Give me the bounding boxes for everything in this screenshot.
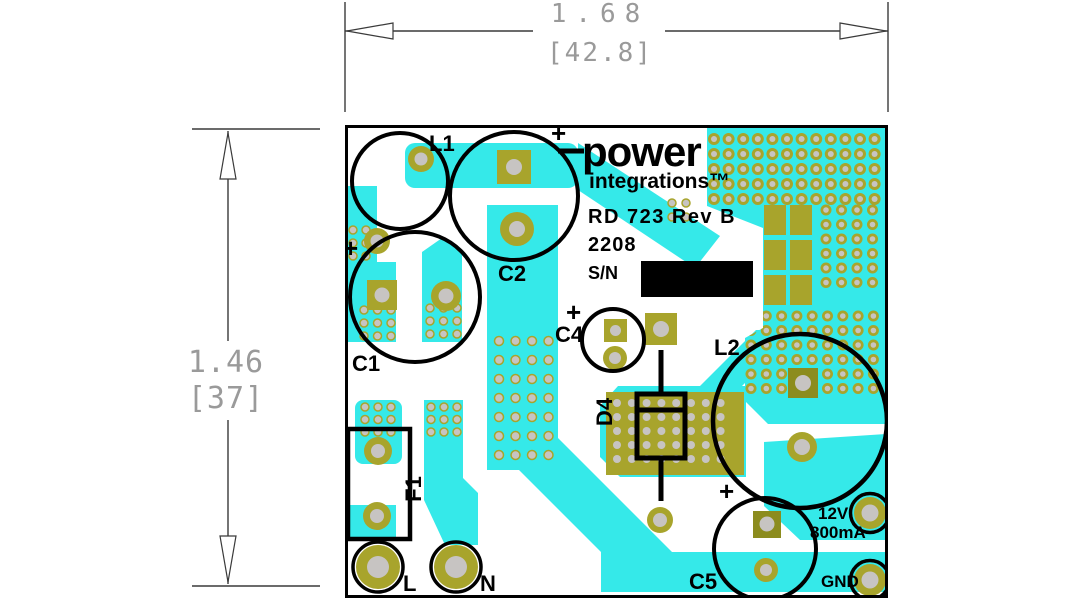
label-l2: L2 [714,335,740,360]
dimension-width: 1.68 [42.8] [345,0,888,112]
pcb-board: power integrations™ RD 723 Rev B 2208 S/… [343,118,890,600]
label-c2: C2 [498,261,526,286]
dim-height-inches: 1.46 [188,345,264,380]
dim-height-mm: [37] [188,381,264,416]
dimension-height: 1.46 [37] [188,129,320,586]
board-model: RD 723 Rev B [588,206,736,228]
label-f1: F1 [401,476,426,502]
board-date-code: 2208 [588,234,637,256]
label-c5: C5 [689,569,717,594]
label-output-voltage: 12V [818,504,849,523]
label-ground: GND [821,572,859,591]
dim-width-inches: 1.68 [551,0,650,29]
plus-mark-c2: + [551,118,566,148]
dim-width-mm: [42.8] [547,38,653,68]
pcb-figure: 1.68 [42.8] 1.46 [37] [0,0,1080,600]
n-via-grid [427,403,461,436]
label-l1: L1 [429,131,455,156]
c1-left-via-grid [360,306,395,340]
logo-integrations: integrations™ [589,170,730,193]
label-d4: D4 [592,397,617,426]
arrow-right-icon [840,23,886,39]
serial-number-box [641,261,753,297]
label-c1: C1 [352,351,380,376]
label-terminal-neutral: N [480,571,496,596]
serial-label: S/N [588,263,618,283]
plus-mark-c4: + [566,297,581,327]
label-output-current: 800mA [810,523,866,542]
arrow-up-icon [220,133,236,179]
logo-power: power [582,128,701,175]
label-terminal-line: L [403,571,416,596]
arrow-down-icon [220,536,236,582]
arrow-left-icon [347,23,393,39]
plus-mark-c5: + [719,476,734,506]
figure-canvas: 1.68 [42.8] 1.46 [37] [0,0,1080,600]
